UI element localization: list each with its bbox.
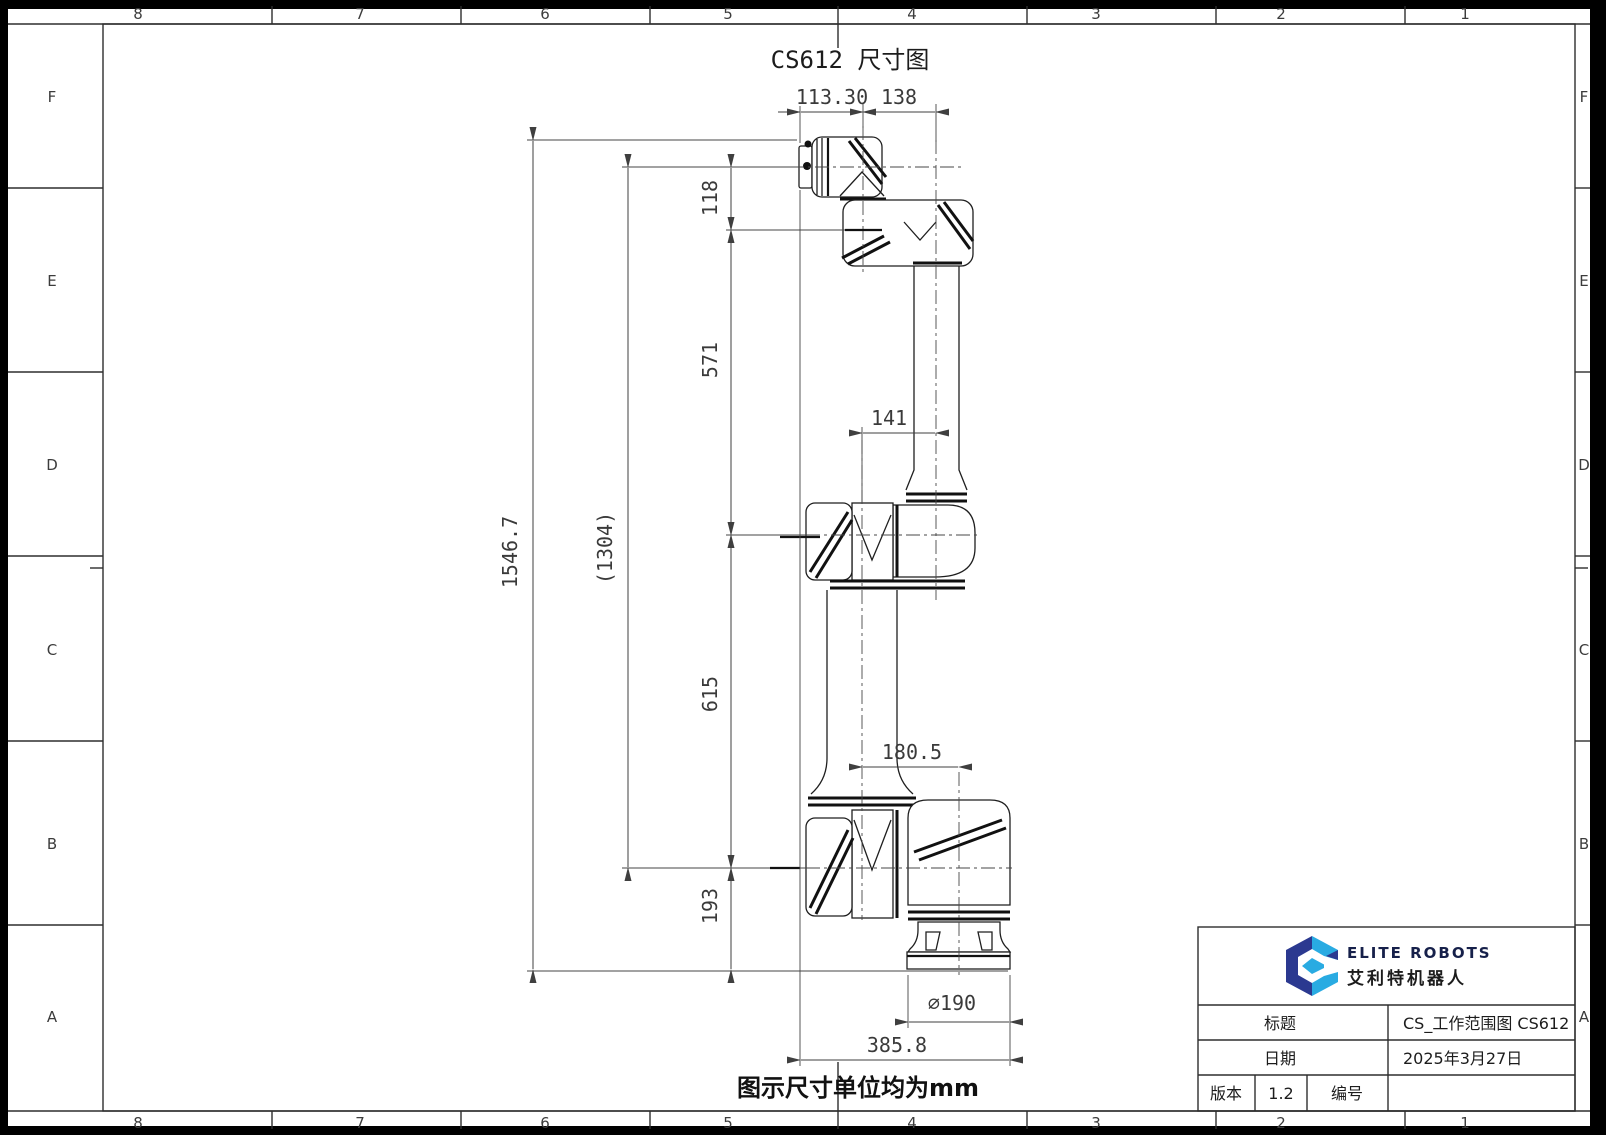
zone-col-label: 1 — [1460, 5, 1470, 23]
zone-row-label: D — [46, 456, 58, 474]
zone-row-label: C — [47, 641, 57, 659]
flange-dot — [803, 162, 811, 170]
brand-name-en: ELITE ROBOTS — [1347, 944, 1492, 962]
dim-385-8: 385.8 — [867, 1033, 927, 1057]
zone-col-label: 6 — [540, 1114, 550, 1132]
zone-col-label: 4 — [907, 5, 917, 23]
drawing-title: CS612 尺寸图 — [771, 46, 930, 74]
version-value: 1.2 — [1268, 1084, 1293, 1103]
elbow-body — [852, 503, 893, 580]
dim-dia-190: ⌀190 — [928, 991, 976, 1015]
zone-row-label: A — [47, 1008, 58, 1026]
zone-row-label: D — [1578, 456, 1590, 474]
dim-113-30: 113.30 — [796, 85, 868, 109]
flange-dot — [805, 141, 812, 148]
shoulder-body — [852, 810, 893, 918]
drawing-sheet: 8 7 6 5 4 3 2 1 8 7 6 5 4 3 2 1 F E D C … — [0, 0, 1606, 1135]
base-plate — [907, 952, 1010, 969]
units-note: 图示尺寸单位均为mm — [737, 1074, 979, 1102]
zone-col-label: 7 — [355, 5, 365, 23]
zone-col-label: 8 — [133, 1114, 143, 1132]
zone-row-label: F — [1580, 88, 1589, 106]
zone-row-label: C — [1579, 641, 1589, 659]
zone-row-label: A — [1579, 1008, 1590, 1026]
zone-row-label: E — [47, 272, 56, 290]
dim-193: 193 — [698, 888, 722, 924]
zone-col-label: 3 — [1091, 1114, 1101, 1132]
dim-180-5: 180.5 — [882, 740, 942, 764]
date-label: 日期 — [1264, 1049, 1296, 1068]
dim-118: 118 — [698, 180, 722, 216]
dim-141: 141 — [871, 406, 907, 430]
date-value: 2025年3月27日 — [1403, 1049, 1522, 1068]
cad-canvas: 8 7 6 5 4 3 2 1 8 7 6 5 4 3 2 1 F E D C … — [0, 0, 1606, 1135]
dim-138: 138 — [881, 85, 917, 109]
zone-col-label: 1 — [1460, 1114, 1470, 1132]
title-label: 标题 — [1264, 1014, 1296, 1033]
zone-col-label: 5 — [723, 1114, 733, 1132]
zone-row-label: B — [47, 835, 57, 853]
dim-1304: (1304) — [593, 512, 617, 584]
dim-615: 615 — [698, 676, 722, 712]
zone-col-label: 2 — [1276, 1114, 1286, 1132]
dim-571: 571 — [698, 342, 722, 378]
zone-col-label: 2 — [1276, 5, 1286, 23]
brand-name-cn: 艾利特机器人 — [1347, 968, 1467, 989]
zone-row-label: F — [48, 88, 57, 106]
zone-col-label: 4 — [907, 1114, 917, 1132]
zone-row-label: B — [1579, 835, 1589, 853]
zone-row-label: E — [1579, 272, 1588, 290]
zone-col-label: 3 — [1091, 5, 1101, 23]
zone-col-label: 7 — [355, 1114, 365, 1132]
dim-1546-7: 1546.7 — [498, 516, 522, 588]
number-label: 编号 — [1331, 1084, 1363, 1103]
zone-col-label: 5 — [723, 5, 733, 23]
elbow-joint — [893, 505, 975, 577]
zone-col-label: 6 — [540, 5, 550, 23]
title-value: CS_工作范围图 CS612 — [1403, 1014, 1569, 1034]
zone-col-label: 8 — [133, 5, 143, 23]
version-label: 版本 — [1210, 1084, 1242, 1103]
